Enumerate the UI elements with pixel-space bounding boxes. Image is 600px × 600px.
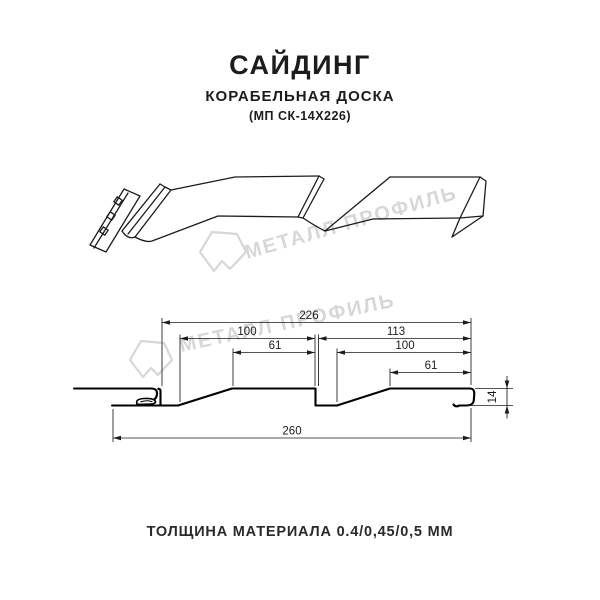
watermark-text: МЕТАЛЛ ПРОФИЛЬ	[242, 182, 460, 264]
dim-right-pitch: 100	[395, 340, 414, 352]
dim-height: 14	[487, 390, 499, 403]
dim-module-width: 226	[299, 310, 318, 322]
watermark-section: МЕТАЛЛ ПРОФИЛЬ	[130, 290, 397, 377]
watermark-text: МЕТАЛЛ ПРОФИЛЬ	[177, 290, 397, 357]
dim-left-flat: 61	[269, 340, 282, 352]
extension-lines	[113, 318, 513, 442]
footer-thickness: ТОЛЩИНА МАТЕРИАЛА 0.4/0,45/0,5 ММ	[0, 524, 600, 540]
dim-right-flat: 61	[425, 360, 438, 372]
technical-drawing: МЕТАЛЛ ПРОФИЛЬ МЕТАЛЛ ПРОФИЛЬ	[0, 0, 600, 600]
page: САЙДИНГ КОРАБЕЛЬНАЯ ДОСКА (МП СК-14Х226)…	[0, 0, 600, 600]
dim-total-width: 260	[282, 426, 301, 438]
metall-profil-logo-icon	[130, 341, 172, 377]
section-profile	[112, 389, 474, 407]
dim-right-step: 113	[387, 326, 405, 338]
panel-end-cap	[452, 177, 486, 237]
metall-profil-logo-icon	[200, 232, 246, 271]
section-lock-upturn	[158, 389, 160, 405]
dim-left-pitch: 100	[237, 326, 256, 338]
section-lock-seam	[137, 398, 156, 404]
